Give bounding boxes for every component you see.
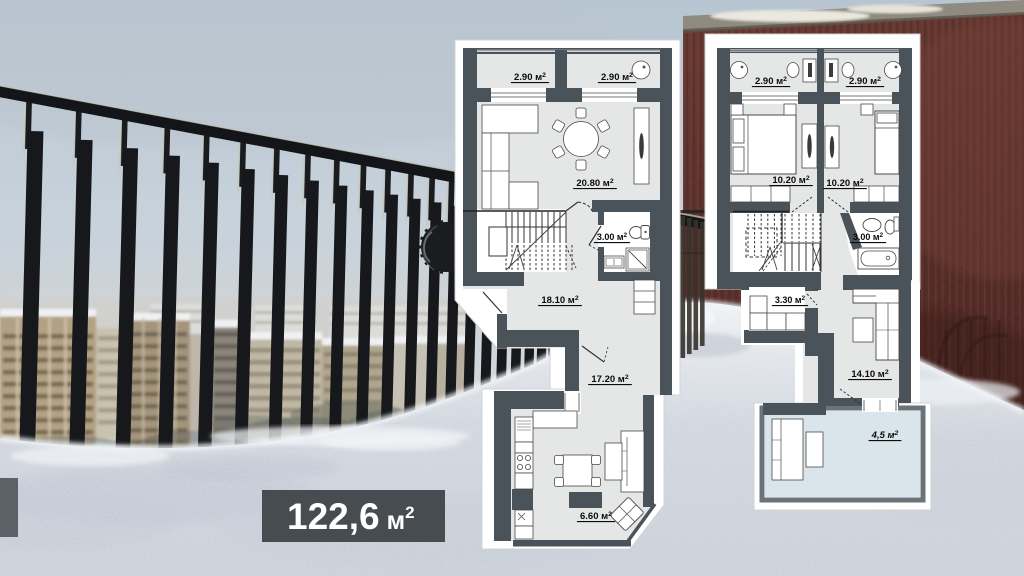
svg-text:3.30 м2: 3.30 м2: [775, 295, 806, 305]
svg-text:18.10 м2: 18.10 м2: [541, 295, 578, 306]
svg-text:6.60 м2: 6.60 м2: [580, 511, 612, 522]
svg-text:2.90 м2: 2.90 м2: [601, 72, 633, 83]
svg-text:3.00 м2: 3.00 м2: [597, 232, 628, 242]
svg-text:2.90 м2: 2.90 м2: [755, 76, 787, 87]
svg-text:10.20 м2: 10.20 м2: [772, 175, 809, 186]
svg-text:14.10 м2: 14.10 м2: [851, 369, 888, 380]
svg-text:20.80 м2: 20.80 м2: [576, 178, 613, 189]
svg-text:2.90 м2: 2.90 м2: [514, 72, 546, 83]
svg-text:3.00 м2: 3.00 м2: [853, 232, 884, 242]
svg-text:10.20 м2: 10.20 м2: [826, 178, 863, 189]
svg-text:2.90 м2: 2.90 м2: [849, 76, 881, 87]
svg-text:17.20 м2: 17.20 м2: [591, 374, 628, 385]
svg-text:4,5 м2: 4,5 м2: [871, 430, 899, 441]
